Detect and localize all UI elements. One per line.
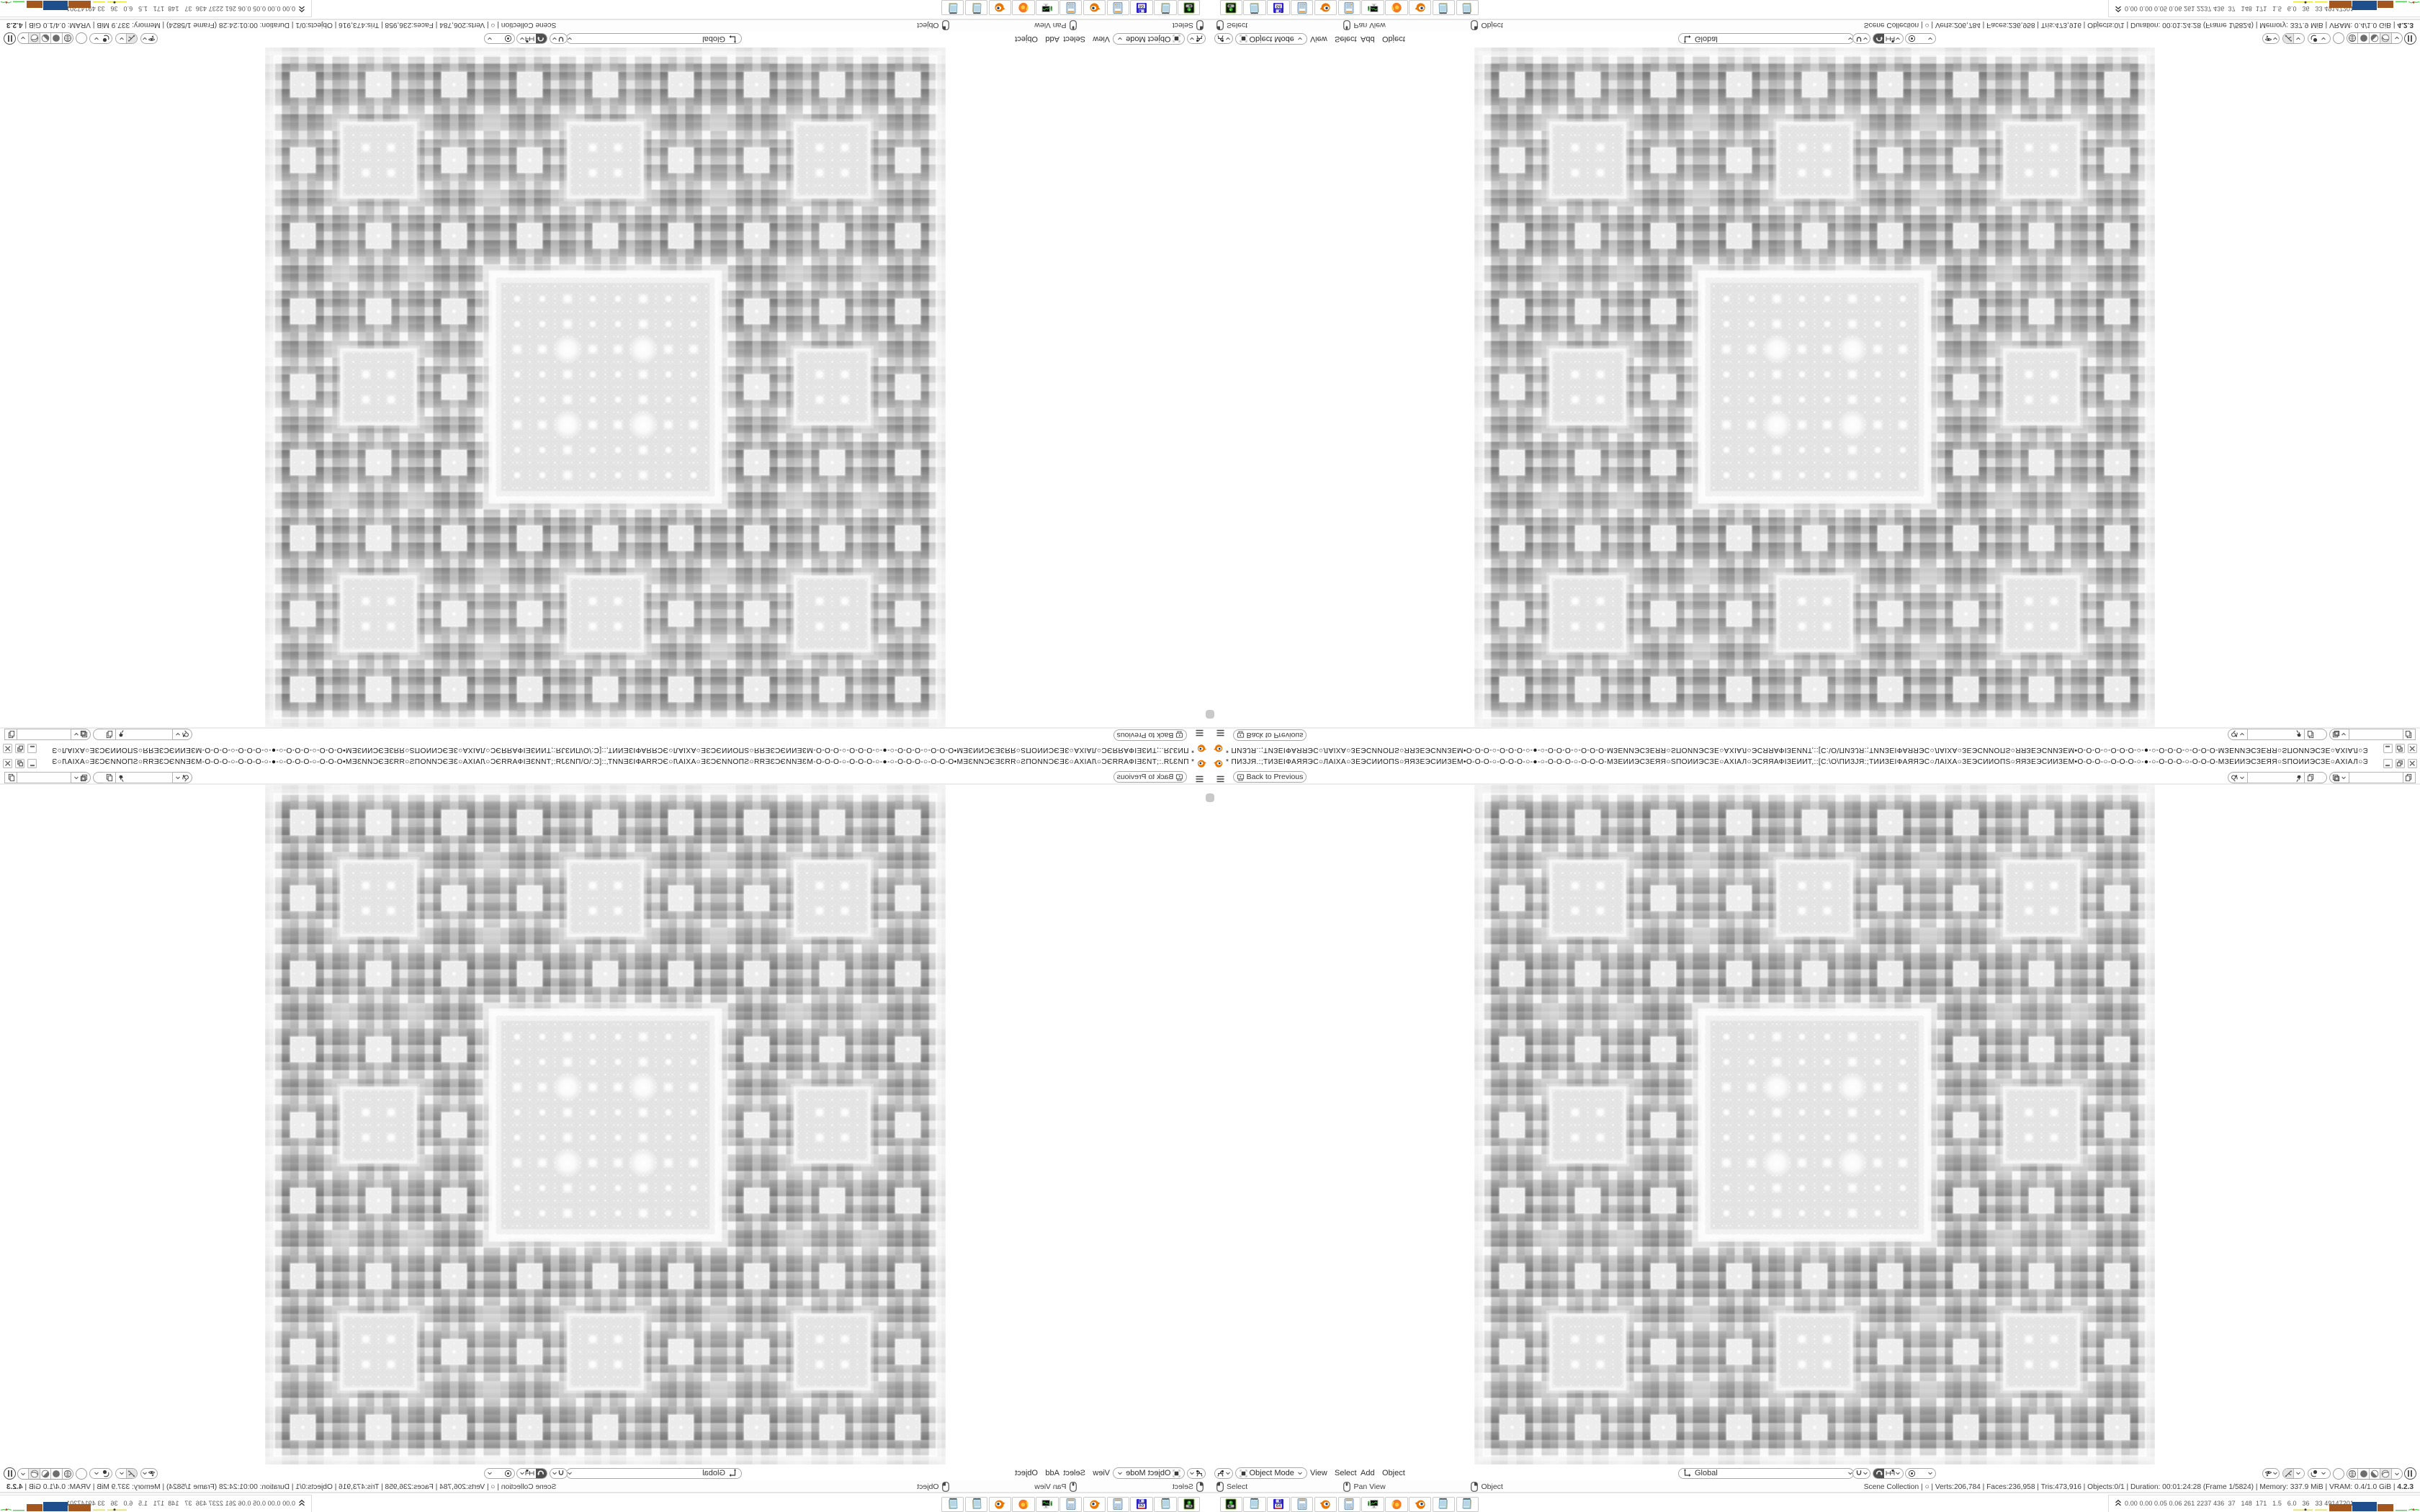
svg-text:64: 64 <box>1276 4 1281 8</box>
svg-text:64: 64 <box>1139 1504 1144 1508</box>
svg-text:64: 64 <box>1139 4 1144 8</box>
svg-text:64: 64 <box>1276 1504 1281 1508</box>
